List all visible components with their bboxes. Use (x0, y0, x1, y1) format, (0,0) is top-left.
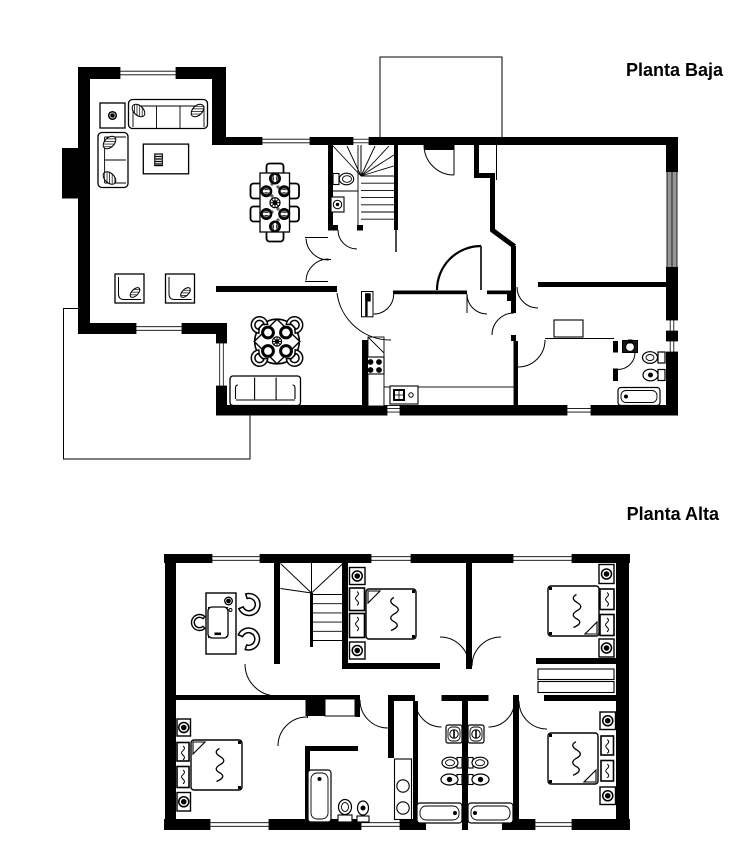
svg-text:Planta Baja: Planta Baja (626, 60, 724, 80)
svg-text:Planta Alta: Planta Alta (627, 504, 720, 524)
